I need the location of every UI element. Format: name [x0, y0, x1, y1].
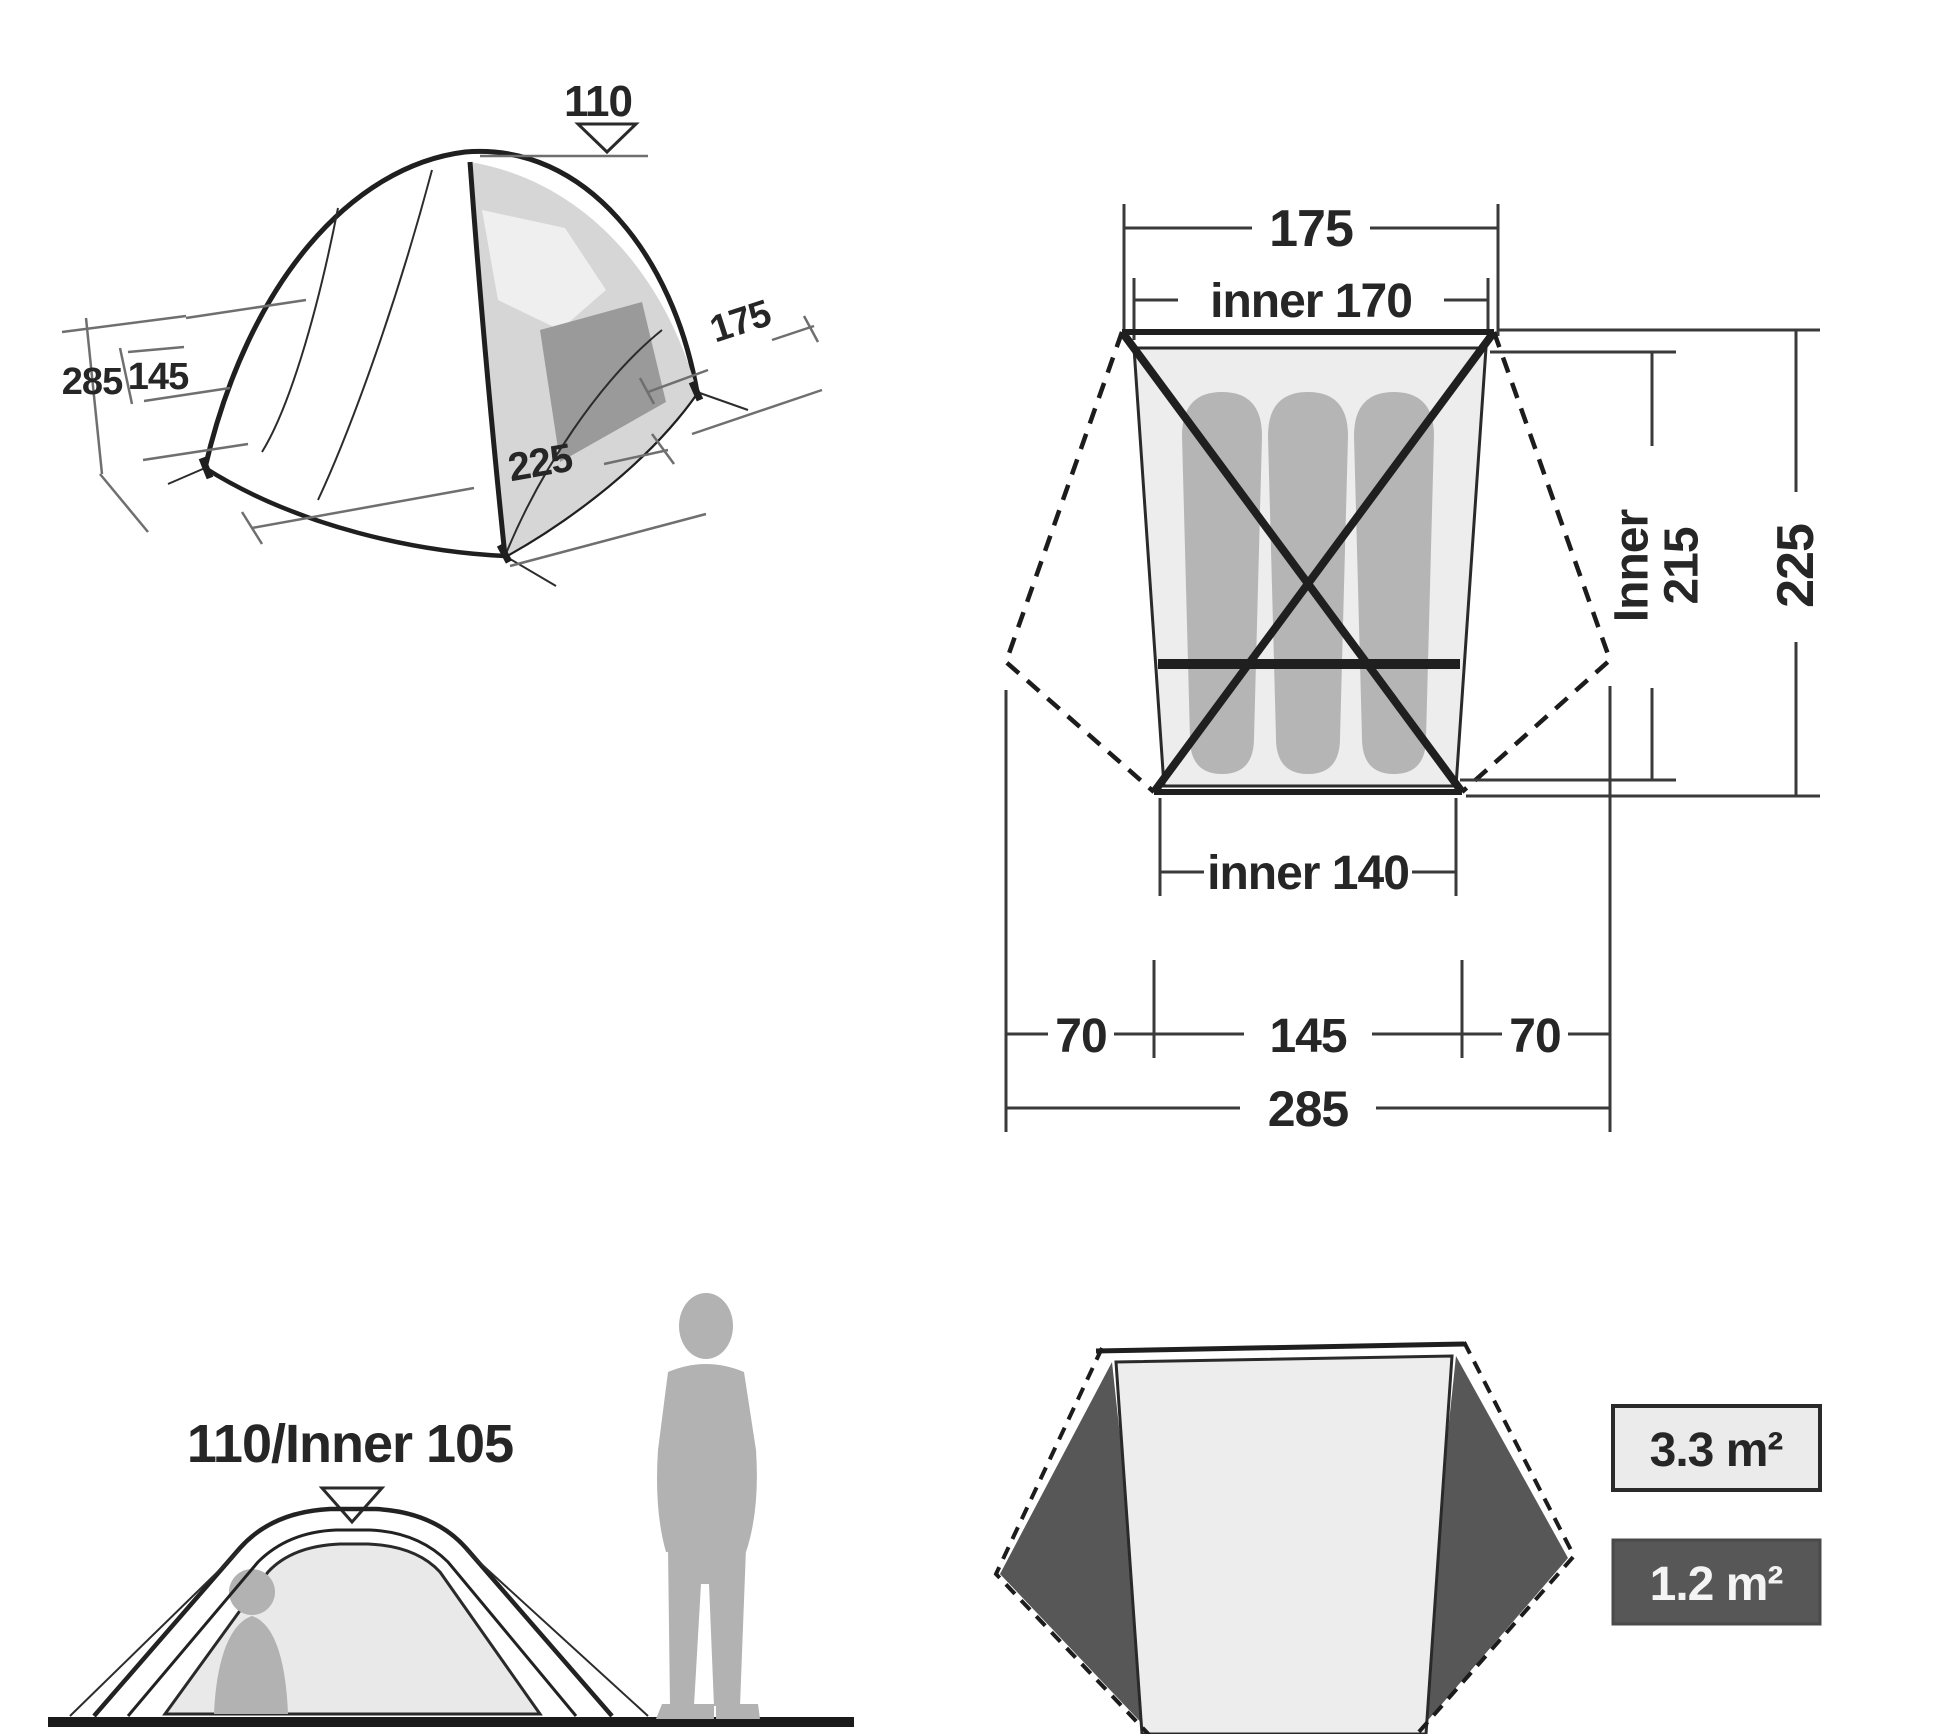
plan-dim-215-label: 215 — [1656, 527, 1709, 604]
floorplan-top-edge — [1096, 1344, 1464, 1351]
height-marker-icon — [578, 124, 636, 152]
perspective-view: 110 285 145 225 175 — [62, 77, 822, 586]
tent-dimension-diagram: 110 285 145 225 175 175 — [0, 0, 1940, 1734]
dim-145-depth-label: 145 — [128, 356, 189, 398]
sleeping-mat — [1354, 392, 1434, 774]
plan-dim-225-label: 225 — [1767, 524, 1825, 608]
tent-front-hem — [205, 468, 505, 556]
plan-dim-70-left-label: 70 — [1055, 1010, 1106, 1063]
legend-vestibule-area-label: 1.2 m² — [1650, 1558, 1783, 1611]
plan-dim-inner140-label: inner 140 — [1207, 847, 1409, 900]
plan-dim-285-label: 285 — [1268, 1081, 1349, 1137]
plan-dim-inner170-label: inner 170 — [1210, 275, 1412, 328]
fly-dashed-outline-left — [1006, 332, 1154, 792]
plan-dim-145-label: 145 — [1269, 1010, 1346, 1063]
sleeping-mat — [1182, 392, 1262, 774]
floor-area — [1116, 1356, 1452, 1734]
plan-dim-70-right-label: 70 — [1509, 1010, 1560, 1063]
fly-dashed-outline-right — [1462, 332, 1610, 792]
elevation-view: 110/Inner 105 — [48, 1293, 854, 1722]
legend-inner-area-label: 3.3 m² — [1650, 1424, 1783, 1477]
floorplan-view: 3.3 m² 1.2 m² — [996, 1342, 1820, 1734]
dim-285-depth-label: 285 — [62, 361, 123, 403]
elevation-height-label: 110/Inner 105 — [187, 1414, 513, 1474]
seated-person-silhouette — [229, 1569, 275, 1615]
dim-110-label: 110 — [564, 77, 632, 126]
standing-person-silhouette — [656, 1293, 760, 1719]
height-marker-icon — [322, 1488, 382, 1522]
plan-dim-175-label: 175 — [1269, 200, 1353, 258]
plan-view: 175 inner 170 Inner 215 — [1006, 200, 1825, 1137]
diagram-svg: 110 285 145 225 175 175 — [0, 0, 1940, 1734]
dim-175-side-label: 175 — [705, 292, 776, 351]
plan-dim-inner-label: Inner — [1606, 510, 1659, 623]
